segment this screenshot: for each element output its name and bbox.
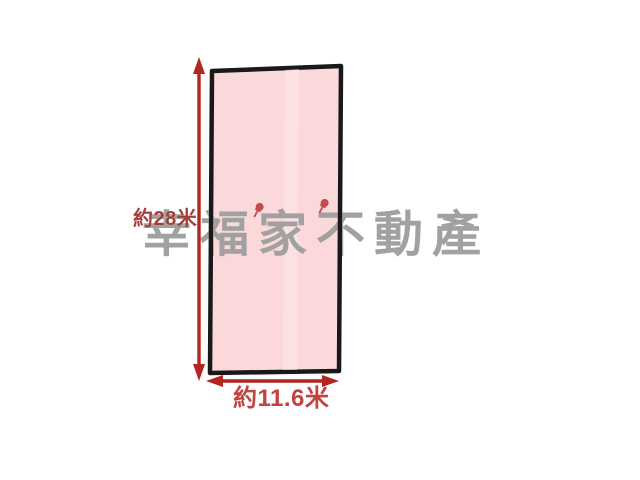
plot-seam (283, 69, 299, 370)
width-dimension-label: 約11.6米 (233, 387, 329, 411)
diagram-canvas: 約28米 約11.6米 幸福家不動產 (0, 0, 640, 480)
height-dimension-label: 約28米 (133, 209, 197, 229)
plot-shape (210, 66, 341, 373)
